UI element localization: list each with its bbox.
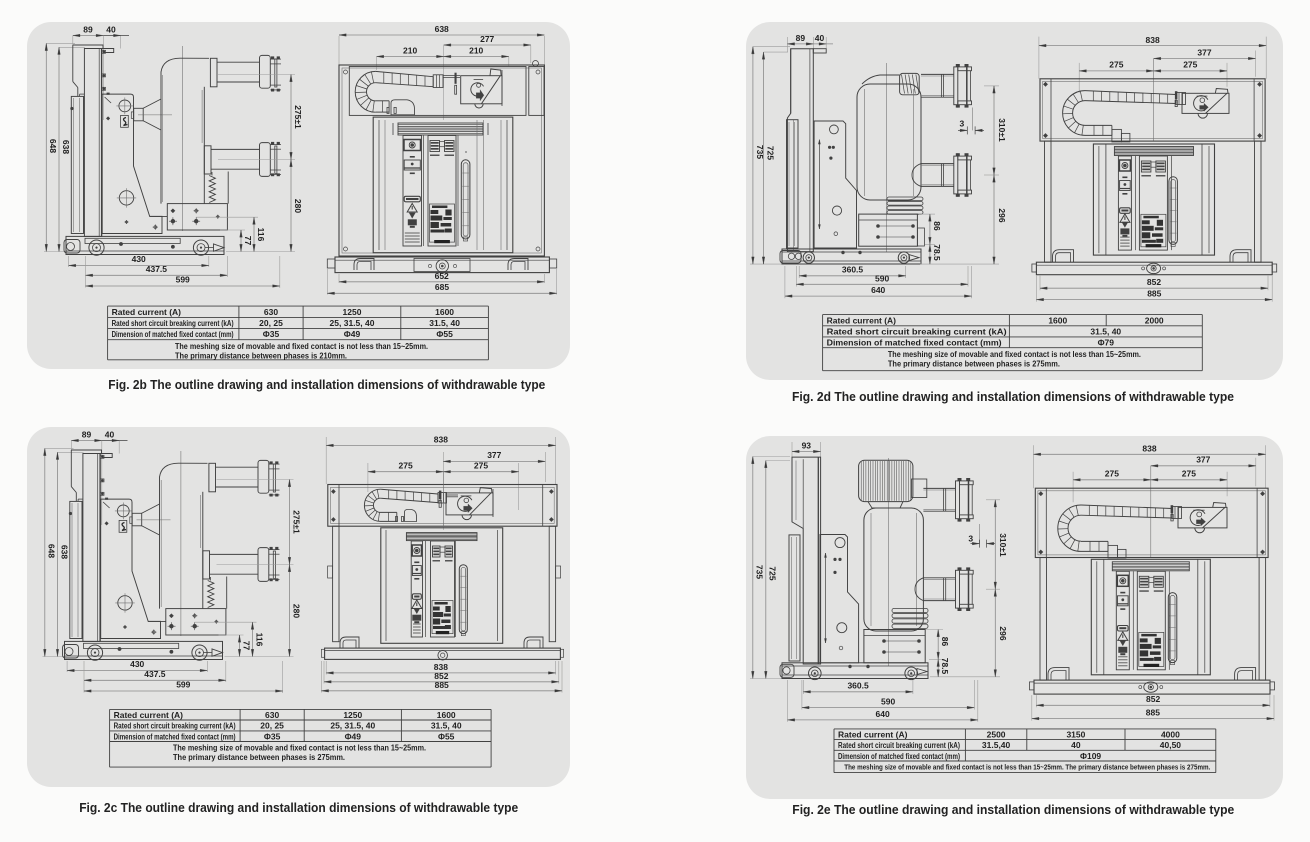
svg-text:590: 590 — [881, 697, 895, 707]
svg-text:1600: 1600 — [437, 710, 456, 720]
svg-text:360.5: 360.5 — [847, 681, 869, 691]
svg-text:The meshing size of movable an: The meshing size of movable and fixed co… — [175, 342, 428, 351]
svg-text:1250: 1250 — [343, 710, 362, 720]
svg-text:838: 838 — [1142, 444, 1156, 454]
svg-text:685: 685 — [435, 282, 449, 292]
svg-text:Fig. 2e The outline drawing an: Fig. 2e The outline drawing and installa… — [792, 803, 1234, 817]
svg-text:89: 89 — [82, 430, 92, 440]
svg-text:275±1: 275±1 — [291, 510, 301, 534]
svg-text:40,50: 40,50 — [1160, 740, 1182, 750]
svg-text:838: 838 — [434, 435, 448, 445]
svg-text:Rated current (A): Rated current (A) — [838, 729, 908, 739]
svg-text:31.5, 40: 31.5, 40 — [431, 721, 462, 731]
svg-text:Rated current (A): Rated current (A) — [112, 307, 182, 317]
svg-text:1600: 1600 — [1048, 315, 1067, 325]
svg-text:885: 885 — [1147, 288, 1161, 298]
svg-text:Φ49: Φ49 — [345, 731, 362, 741]
svg-text:40: 40 — [1071, 740, 1081, 750]
svg-text:885: 885 — [1146, 707, 1160, 717]
svg-text:630: 630 — [264, 307, 278, 317]
svg-text:275: 275 — [399, 461, 413, 471]
svg-text:40: 40 — [105, 430, 115, 440]
svg-text:31.5, 40: 31.5, 40 — [1090, 327, 1121, 337]
svg-text:Dimension of matched fixed con: Dimension of matched fixed contact (mm) — [112, 330, 234, 339]
svg-text:The meshing size of movable an: The meshing size of movable and fixed co… — [844, 762, 1210, 771]
svg-text:210: 210 — [469, 45, 483, 55]
svg-text:275±1: 275±1 — [293, 105, 303, 129]
svg-text:Rated current (A): Rated current (A) — [114, 710, 184, 720]
svg-text:Rated short circuit breaking c: Rated short circuit breaking current (kA… — [838, 741, 960, 750]
svg-text:Rated short circuit breaking c: Rated short circuit breaking current (kA… — [114, 722, 236, 731]
svg-text:275: 275 — [1183, 60, 1197, 70]
svg-text:648: 648 — [48, 139, 58, 153]
svg-text:Rated short circuit breaking c: Rated short circuit breaking current (kA… — [827, 327, 1007, 337]
svg-text:377: 377 — [1197, 47, 1211, 57]
svg-text:885: 885 — [435, 680, 449, 690]
svg-text:275: 275 — [1182, 469, 1196, 479]
svg-text:852: 852 — [1147, 277, 1161, 287]
svg-text:310±1: 310±1 — [997, 118, 1007, 142]
svg-text:280: 280 — [291, 604, 301, 618]
svg-text:638: 638 — [59, 545, 69, 559]
svg-text:The meshing size of movable an: The meshing size of movable and fixed co… — [173, 744, 426, 753]
svg-text:40: 40 — [106, 25, 116, 35]
svg-text:78.5: 78.5 — [932, 244, 942, 261]
svg-text:Φ35: Φ35 — [264, 731, 281, 741]
svg-text:652: 652 — [435, 271, 449, 281]
svg-text:296: 296 — [998, 626, 1008, 640]
svg-text:640: 640 — [876, 709, 890, 719]
svg-text:78.5: 78.5 — [940, 658, 950, 675]
svg-text:599: 599 — [176, 680, 190, 690]
svg-text:Φ109: Φ109 — [1080, 751, 1101, 761]
svg-text:310±1: 310±1 — [998, 533, 1008, 557]
svg-text:648: 648 — [47, 544, 57, 558]
svg-text:3: 3 — [960, 119, 965, 129]
svg-text:86: 86 — [932, 221, 942, 231]
svg-text:630: 630 — [265, 710, 279, 720]
svg-text:Fig. 2d The outline drawing an: Fig. 2d The outline drawing and installa… — [792, 390, 1234, 404]
svg-text:31.5,40: 31.5,40 — [982, 740, 1011, 750]
svg-text:40: 40 — [815, 33, 825, 43]
svg-text:116: 116 — [254, 633, 264, 647]
svg-text:20, 25: 20, 25 — [259, 318, 283, 328]
svg-text:89: 89 — [83, 25, 93, 35]
svg-text:377: 377 — [487, 450, 501, 460]
svg-text:25, 31.5, 40: 25, 31.5, 40 — [330, 318, 375, 328]
svg-text:Φ55: Φ55 — [438, 731, 455, 741]
svg-text:116: 116 — [256, 228, 266, 242]
svg-text:437.5: 437.5 — [144, 669, 166, 679]
svg-text:275: 275 — [1109, 60, 1123, 70]
svg-text:638: 638 — [435, 24, 449, 34]
svg-text:The primary distance between p: The primary distance between phases is 2… — [175, 351, 347, 360]
svg-text:638: 638 — [61, 140, 71, 154]
svg-text:2500: 2500 — [987, 729, 1006, 739]
svg-text:The primary distance between p: The primary distance between phases is 2… — [888, 359, 1060, 368]
svg-text:4000: 4000 — [1161, 729, 1180, 739]
svg-text:Rated current (A): Rated current (A) — [827, 315, 897, 325]
svg-text:430: 430 — [132, 254, 146, 264]
svg-text:3150: 3150 — [1066, 729, 1085, 739]
svg-text:275: 275 — [1105, 469, 1119, 479]
svg-text:Φ49: Φ49 — [344, 329, 361, 339]
svg-text:31.5, 40: 31.5, 40 — [429, 318, 460, 328]
svg-text:Φ35: Φ35 — [263, 329, 280, 339]
svg-text:280: 280 — [293, 199, 303, 213]
svg-text:1600: 1600 — [435, 307, 454, 317]
svg-text:210: 210 — [403, 45, 417, 55]
svg-text:296: 296 — [997, 208, 1007, 222]
svg-text:430: 430 — [130, 659, 144, 669]
svg-text:2000: 2000 — [1145, 315, 1164, 325]
svg-text:Φ55: Φ55 — [436, 329, 453, 339]
svg-text:852: 852 — [1146, 694, 1160, 704]
svg-text:277: 277 — [480, 34, 494, 44]
svg-text:1250: 1250 — [343, 307, 362, 317]
svg-text:Dimension of matched fixed con: Dimension of matched fixed contact (mm) — [838, 752, 960, 761]
svg-text:Fig. 2b The outline drawing an: Fig. 2b The outline drawing and installa… — [108, 378, 545, 392]
svg-text:Dimension of matched fixed con: Dimension of matched fixed contact (mm) — [114, 732, 236, 741]
svg-text:377: 377 — [1196, 455, 1210, 465]
svg-text:86: 86 — [940, 637, 950, 647]
svg-text:77: 77 — [243, 236, 253, 246]
svg-text:275: 275 — [474, 461, 488, 471]
svg-text:3: 3 — [968, 534, 973, 544]
svg-text:The meshing size of movable an: The meshing size of movable and fixed co… — [888, 350, 1141, 359]
svg-text:20, 25: 20, 25 — [260, 721, 284, 731]
svg-text:725: 725 — [768, 566, 778, 580]
svg-text:Fig. 2c The outline drawing an: Fig. 2c The outline drawing and installa… — [79, 801, 518, 815]
svg-text:360.5: 360.5 — [842, 265, 864, 275]
svg-text:437.5: 437.5 — [146, 264, 168, 274]
svg-text:640: 640 — [871, 285, 885, 295]
svg-text:725: 725 — [765, 146, 775, 160]
svg-text:89: 89 — [796, 33, 806, 43]
svg-text:93: 93 — [802, 441, 812, 451]
svg-text:Dimension of matched fixed con: Dimension of matched fixed contact (mm) — [827, 337, 1002, 347]
svg-text:735: 735 — [755, 565, 765, 579]
svg-text:599: 599 — [176, 275, 190, 285]
svg-text:25, 31.5, 40: 25, 31.5, 40 — [330, 721, 375, 731]
svg-text:Rated short circuit breaking c: Rated short circuit breaking current (kA… — [112, 319, 234, 328]
svg-text:838: 838 — [1146, 35, 1160, 45]
svg-text:77: 77 — [241, 641, 251, 651]
svg-text:590: 590 — [875, 273, 889, 283]
svg-text:The primary distance between p: The primary distance between phases is 2… — [173, 753, 345, 762]
svg-text:Φ79: Φ79 — [1098, 337, 1115, 347]
